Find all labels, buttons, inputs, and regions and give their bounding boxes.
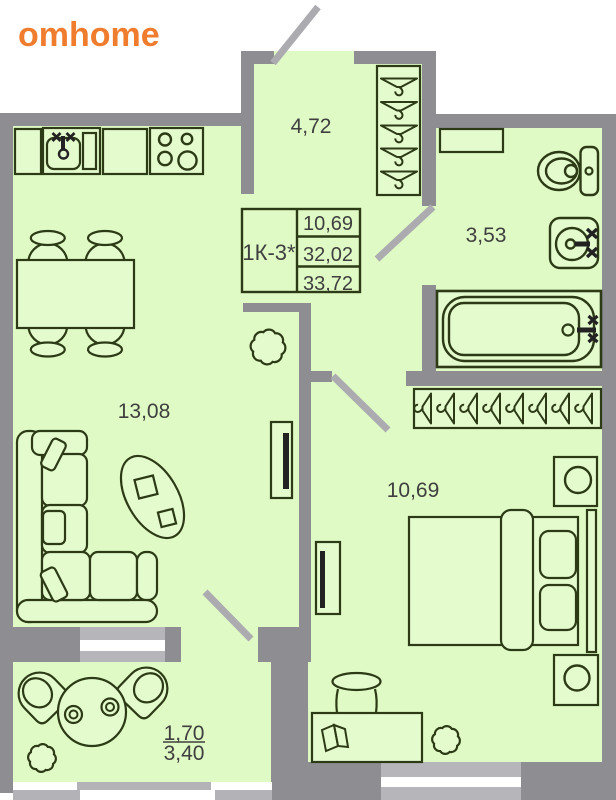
svg-text:33,72: 33,72	[303, 273, 353, 295]
svg-text:10,69: 10,69	[303, 213, 353, 235]
svg-text:32,02: 32,02	[303, 244, 353, 266]
svg-text:3,40: 3,40	[164, 742, 205, 765]
svg-text:13,08: 13,08	[118, 400, 171, 423]
svg-text:3,53: 3,53	[466, 224, 507, 247]
svg-text:1К-3*: 1К-3*	[242, 240, 296, 265]
svg-text:10,69: 10,69	[387, 479, 440, 502]
svg-text:omhome: omhome	[18, 16, 160, 54]
svg-text:4,72: 4,72	[291, 115, 332, 138]
